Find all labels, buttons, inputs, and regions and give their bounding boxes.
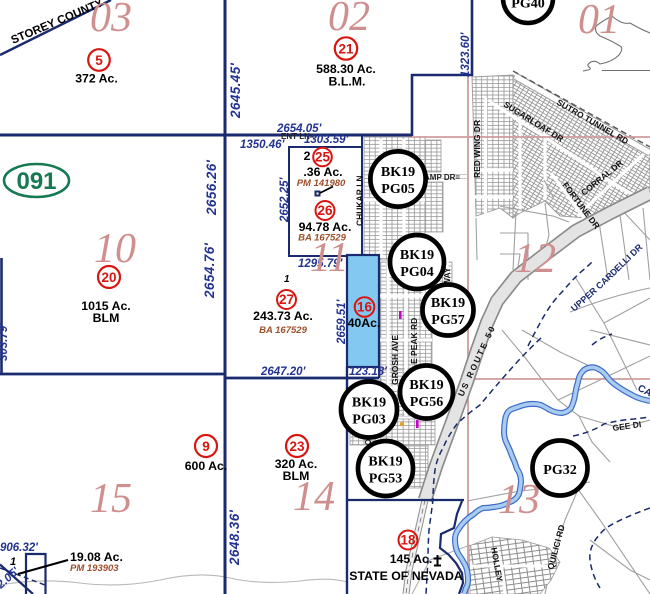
svg-text:12: 12 — [514, 236, 556, 282]
svg-text:PG57: PG57 — [431, 313, 464, 328]
svg-text:27: 27 — [279, 292, 294, 307]
svg-text:40Ac.: 40Ac. — [348, 316, 381, 330]
svg-text:BK19: BK19 — [352, 396, 386, 411]
svg-text:BA 167529: BA 167529 — [259, 325, 307, 336]
svg-text:03: 03 — [90, 0, 132, 41]
svg-text:AMP DR=: AMP DR= — [424, 173, 460, 182]
svg-text:2659.51': 2659.51' — [336, 298, 348, 345]
svg-text:19.08 Ac.: 19.08 Ac. — [70, 550, 123, 564]
svg-text:01: 01 — [578, 0, 620, 43]
svg-text:2647.20': 2647.20' — [260, 366, 307, 378]
svg-text:.36 Ac.: .36 Ac. — [303, 165, 342, 179]
svg-text:BA 167529: BA 167529 — [298, 233, 346, 244]
svg-text:PG56: PG56 — [410, 395, 443, 410]
svg-text:26: 26 — [317, 203, 333, 218]
svg-text:9: 9 — [202, 439, 210, 454]
svg-text:PM 141980: PM 141980 — [297, 178, 346, 189]
svg-text:13: 13 — [498, 477, 540, 523]
svg-text:2648.36': 2648.36' — [227, 509, 242, 566]
svg-text:18: 18 — [400, 533, 416, 548]
svg-text:243.73 Ac.: 243.73 Ac. — [253, 309, 313, 323]
svg-text:123.18': 123.18' — [349, 366, 388, 378]
svg-text:BK19: BK19 — [400, 248, 434, 263]
svg-text:600 Ac.: 600 Ac. — [185, 459, 228, 473]
svg-text:B.L.M.: B.L.M. — [329, 75, 366, 89]
svg-text:GROSH AVE: GROSH AVE — [390, 335, 400, 385]
svg-text:21: 21 — [338, 42, 354, 57]
svg-text:1350.46': 1350.46' — [240, 139, 286, 151]
svg-text:091: 091 — [16, 168, 56, 195]
svg-text:25: 25 — [315, 150, 331, 165]
svg-text:372 Ac.: 372 Ac. — [75, 72, 118, 86]
svg-text:E PEAK RD: E PEAK RD — [409, 318, 419, 364]
svg-text:1: 1 — [10, 556, 16, 568]
svg-text:20: 20 — [101, 270, 116, 285]
svg-text:BK19: BK19 — [368, 455, 402, 470]
svg-text:2645.45': 2645.45' — [228, 62, 243, 119]
svg-text:CHUKAR LN: CHUKAR LN — [355, 175, 365, 226]
svg-text:BLM: BLM — [93, 311, 120, 325]
svg-text:2652.25': 2652.25' — [279, 176, 291, 223]
svg-text:PG40: PG40 — [511, 0, 544, 12]
svg-text:145 Ac.: 145 Ac. — [390, 552, 433, 566]
svg-text:5: 5 — [95, 53, 103, 68]
svg-text:2: 2 — [304, 149, 311, 163]
svg-text:BLM: BLM — [283, 469, 310, 483]
svg-text:1323.60': 1323.60' — [460, 31, 472, 77]
svg-text:906.32': 906.32' — [0, 542, 39, 554]
svg-text:10: 10 — [94, 226, 136, 272]
svg-text:RED WING DR: RED WING DR — [472, 120, 482, 178]
svg-text:303.79': 303.79' — [0, 322, 10, 361]
svg-text:1: 1 — [284, 274, 290, 285]
svg-text:23: 23 — [289, 439, 305, 454]
svg-text:02: 02 — [328, 0, 370, 40]
svg-text:PG53: PG53 — [369, 472, 402, 487]
svg-text:2654.76': 2654.76' — [202, 242, 217, 299]
svg-text:STATE OF NEVADA: STATE OF NEVADA — [349, 569, 463, 583]
svg-text:BK19: BK19 — [431, 296, 465, 311]
svg-text:1303.59': 1303.59' — [304, 134, 350, 146]
svg-text:PG03: PG03 — [352, 413, 385, 428]
svg-text:2656.26': 2656.26' — [204, 159, 219, 216]
svg-text:BK19: BK19 — [381, 165, 415, 180]
svg-text:15: 15 — [90, 476, 132, 522]
svg-text:PG32: PG32 — [543, 463, 576, 478]
svg-text:BK19: BK19 — [409, 378, 443, 393]
svg-text:16: 16 — [357, 300, 373, 315]
svg-text:PG04: PG04 — [400, 265, 433, 280]
svg-text:PG05: PG05 — [381, 182, 414, 197]
svg-text:PM 193903: PM 193903 — [70, 563, 119, 574]
